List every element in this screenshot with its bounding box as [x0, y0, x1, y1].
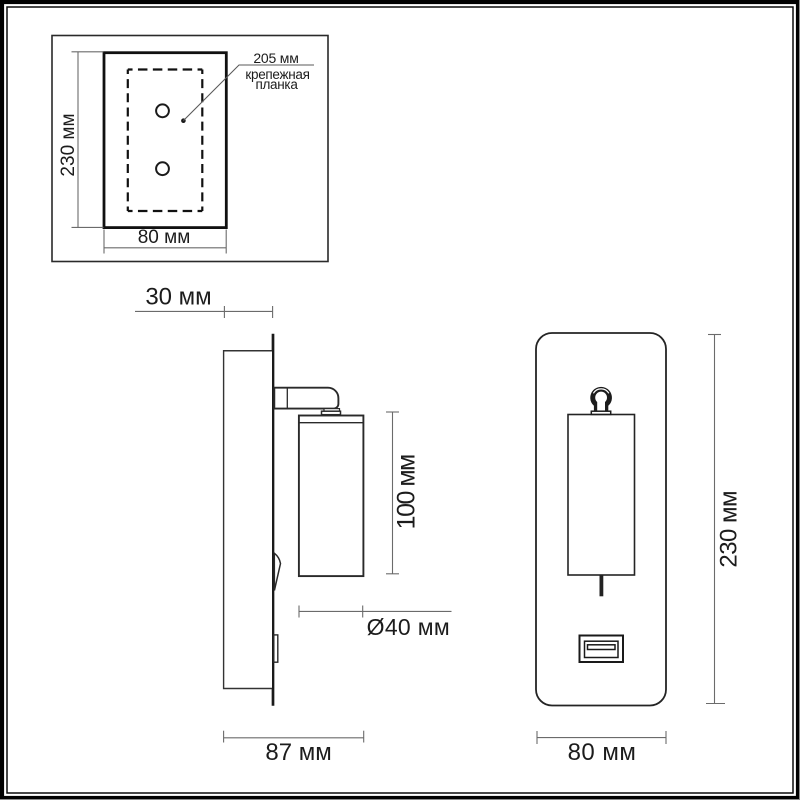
svg-text:230 мм: 230 мм — [58, 113, 79, 176]
svg-text:80 мм: 80 мм — [138, 227, 191, 248]
svg-text:87 мм: 87 мм — [265, 739, 331, 766]
svg-text:205 мм: 205 мм — [253, 50, 298, 66]
svg-text:230 мм: 230 мм — [716, 491, 743, 568]
svg-text:Ø40 мм: Ø40 мм — [367, 614, 450, 640]
svg-text:80 мм: 80 мм — [568, 739, 637, 766]
svg-text:100 мм: 100 мм — [392, 455, 420, 529]
svg-text:планка: планка — [255, 77, 298, 92]
svg-text:30 мм: 30 мм — [145, 283, 211, 310]
